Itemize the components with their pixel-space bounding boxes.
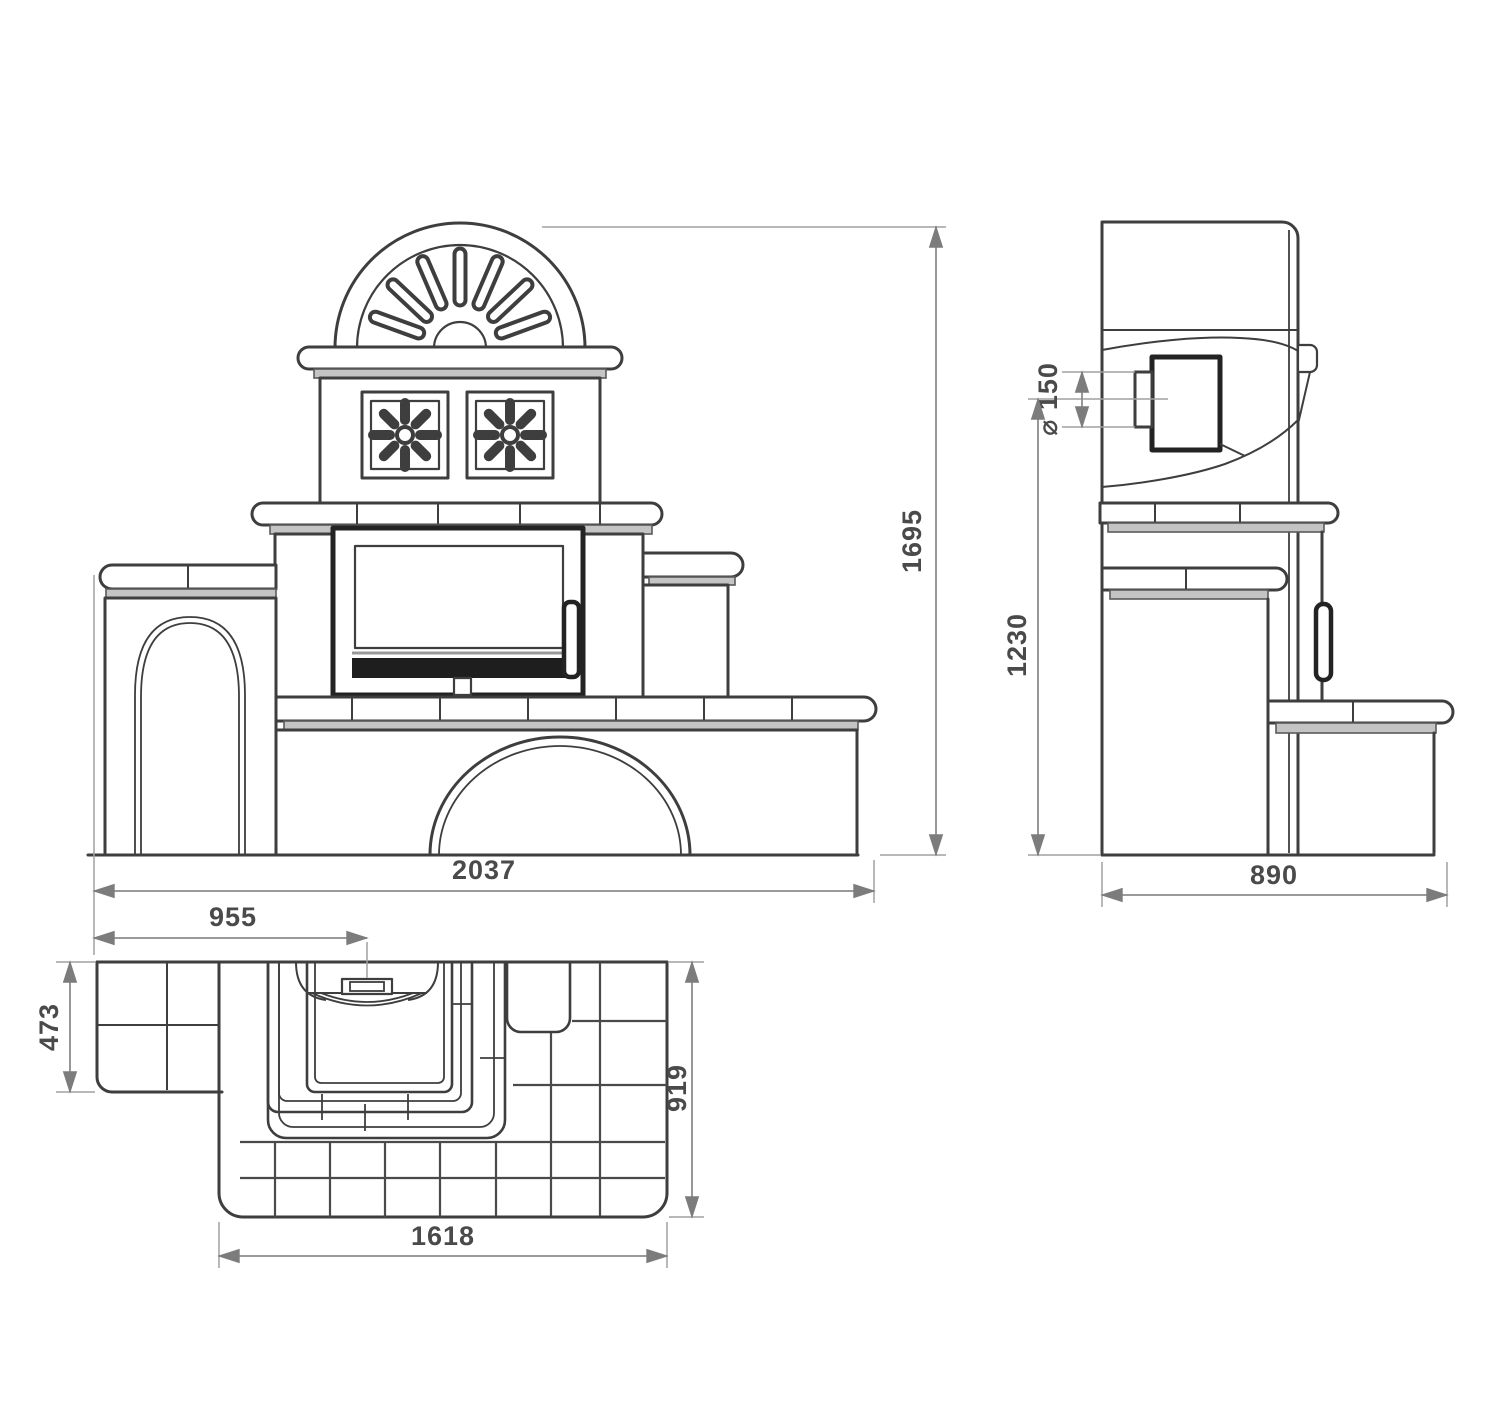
plan-tile-grid (240, 962, 667, 1217)
plan-left-bench (97, 962, 222, 1092)
right-pedestal-body (643, 585, 728, 697)
door-glass (355, 546, 563, 648)
stove-technical-drawing: 1695 2037 ⌀ 150 (0, 0, 1500, 1427)
cornice-top (298, 347, 622, 369)
dim-front-height-label: 1695 (897, 509, 927, 573)
crown-arch (335, 223, 585, 348)
side-bench-top (1268, 701, 1453, 723)
dimension-plan-body-width: 1618 (219, 1221, 667, 1268)
right-shelf (643, 553, 743, 577)
right-pedestal (643, 553, 743, 697)
dim-flue-height-label: 1230 (1002, 613, 1032, 677)
left-cabinet-body (105, 598, 276, 855)
plan-view: 955 473 919 1618 (34, 902, 704, 1268)
door-ash-strip (352, 658, 566, 678)
left-cabinet (100, 565, 276, 855)
plan-level-outlines (268, 962, 570, 1138)
rosette-tile-right (467, 392, 553, 478)
dim-side-depth-label: 890 (1250, 860, 1298, 890)
dim-plan-bench-depth-label: 473 (34, 1003, 64, 1051)
side-shelf (1102, 568, 1287, 590)
flue-box (1152, 357, 1220, 450)
door-handle (564, 602, 579, 677)
base-body (276, 730, 857, 855)
dimension-plan-bench-width: 955 (94, 902, 367, 978)
front-view: 1695 2037 (88, 223, 946, 955)
base-cornice (276, 697, 876, 721)
base (276, 697, 876, 855)
rosette-tile-left (362, 392, 448, 478)
side-cornice (1100, 503, 1338, 523)
side-door-handle (1316, 604, 1331, 680)
drawing-page: 1695 2037 ⌀ 150 (0, 0, 1500, 1427)
dimension-side-depth: 890 (1102, 860, 1447, 907)
side-view: ⌀ 150 1230 890 (1002, 222, 1453, 907)
dim-front-width-label: 2037 (452, 855, 516, 885)
dimension-plan-bench-depth: 473 (34, 962, 95, 1092)
firebox-door (333, 528, 583, 695)
dim-plan-bench-width-label: 955 (209, 902, 257, 932)
dim-plan-body-width-label: 1618 (411, 1221, 475, 1251)
door-foot (454, 678, 471, 695)
cornice-ledge-side (1298, 345, 1317, 372)
dim-plan-body-depth-label: 919 (662, 1064, 692, 1112)
dimension-flue-height: 1230 (1002, 399, 1100, 855)
plan-pedestal-outline (507, 962, 570, 1032)
